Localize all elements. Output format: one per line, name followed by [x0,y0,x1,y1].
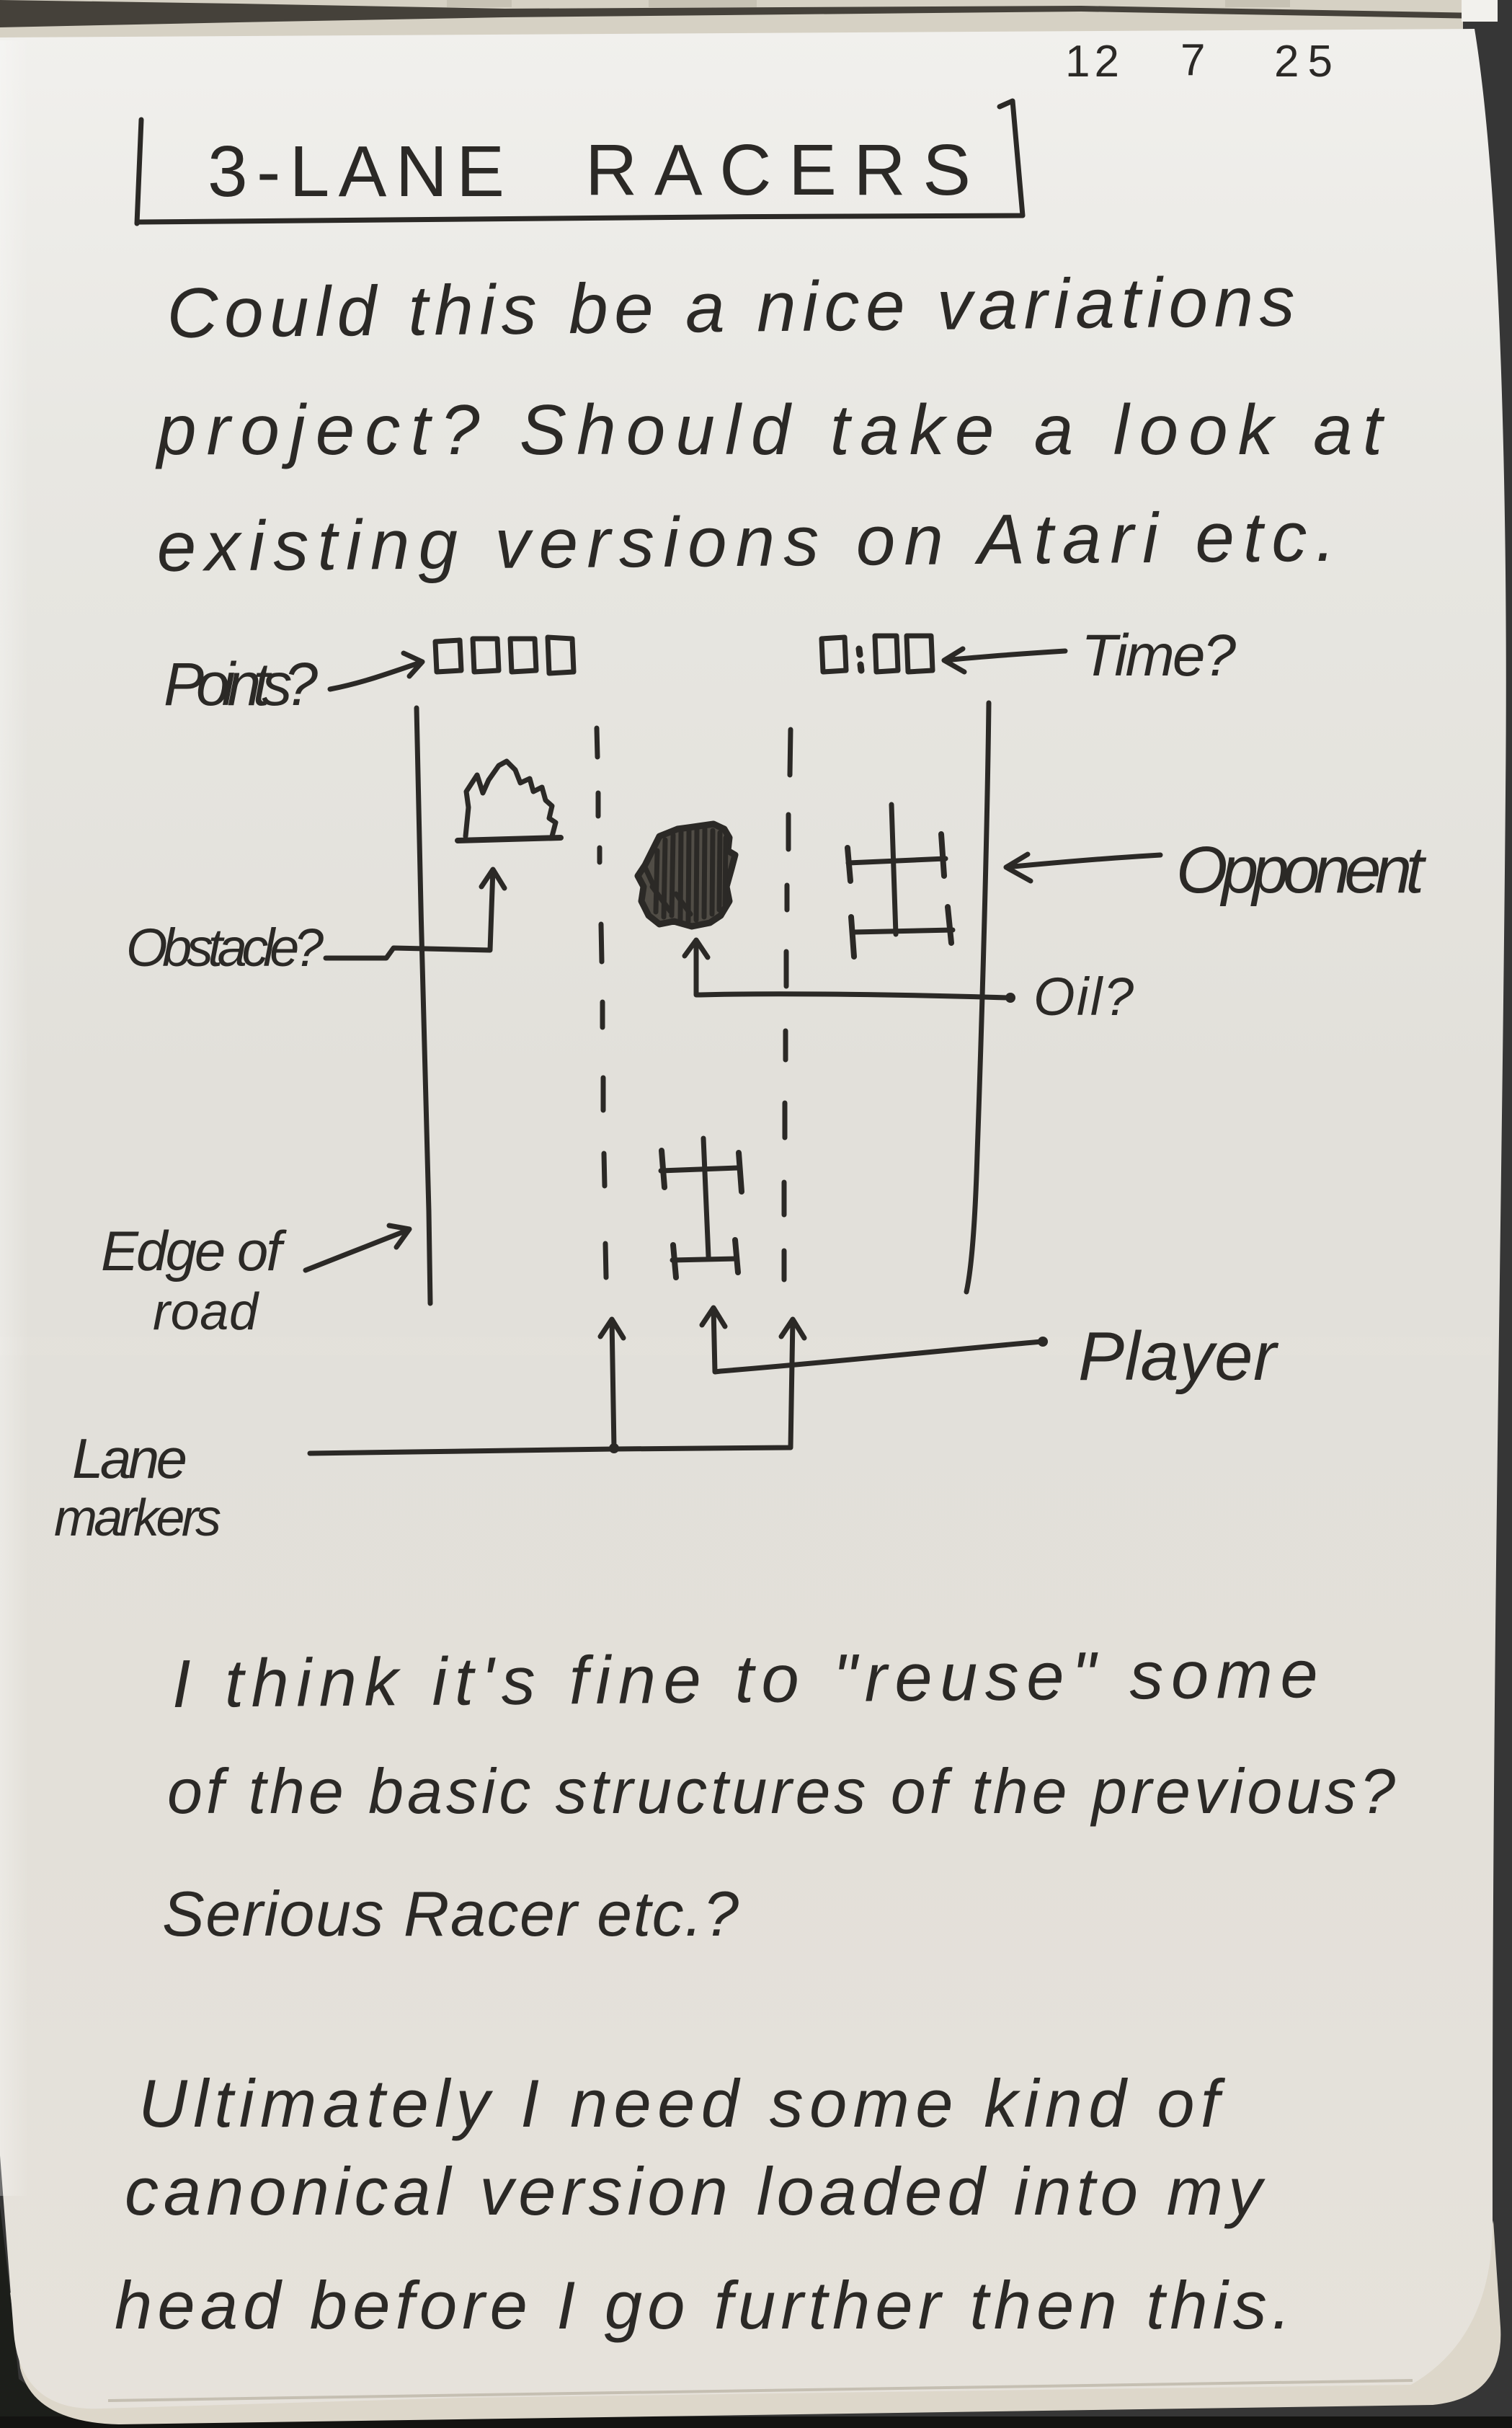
svg-text:Serious Racer etc.?: Serious Racer etc.? [162,1878,739,1949]
svg-text:12: 12 [1065,37,1124,87]
svg-text:Player: Player [1078,1318,1279,1395]
svg-text:Ultimately I need some kind of: Ultimately I need some kind of [138,2065,1226,2141]
svg-text:Opponent: Opponent [1176,833,1426,907]
svg-text:of the basic structures of the: of the basic structures of the previous? [167,1755,1395,1827]
svg-text:canonical version loaded into: canonical version loaded into my [125,2153,1266,2229]
svg-text:markers: markers [54,1489,221,1547]
svg-text:I think it's fine to "reuse" s: I think it's fine to "reuse" some [172,1636,1318,1722]
svg-text:Points?: Points? [164,650,318,718]
svg-text:7: 7 [1180,35,1205,85]
svg-text:25: 25 [1274,37,1341,87]
svg-text:Edge of: Edge of [101,1219,287,1282]
svg-text:Time?: Time? [1081,623,1236,688]
svg-text:Oil?: Oil? [1033,967,1134,1027]
svg-text:Obstacle?: Obstacle? [126,918,324,978]
svg-text:Lane: Lane [72,1427,187,1490]
svg-text:head before I go further then: head before I go further then this. [115,2267,1291,2343]
svg-text:road: road [153,1283,259,1341]
svg-text:project? Should take a look at: project? Should take a look at [155,390,1385,469]
